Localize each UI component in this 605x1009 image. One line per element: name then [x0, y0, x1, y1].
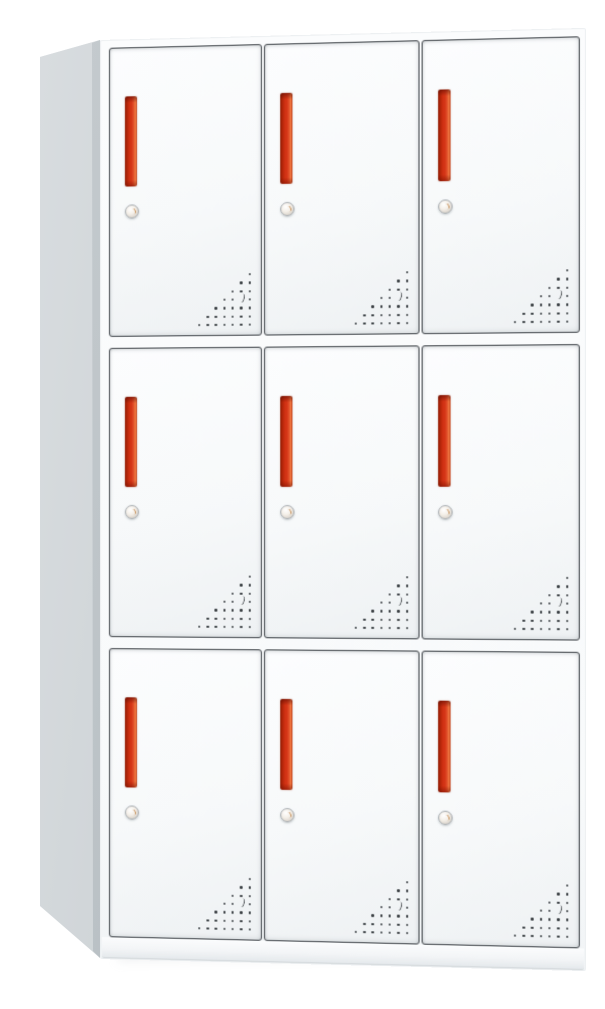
crescent-vent	[554, 597, 562, 607]
vent-hole	[248, 626, 250, 628]
vent-hole	[566, 611, 569, 613]
vent-hole	[248, 307, 250, 309]
keyhole-lock	[438, 505, 452, 519]
vent-hole	[223, 928, 225, 930]
vent-hole	[531, 926, 533, 929]
locker-door	[422, 651, 580, 949]
vent-hole	[389, 314, 391, 316]
vent-hole	[397, 898, 399, 900]
vent-hole	[566, 320, 569, 322]
locker-door	[109, 44, 262, 337]
vent-hole	[372, 914, 374, 916]
vent-hole	[406, 610, 408, 612]
vent-hole	[566, 303, 569, 305]
door-handle	[438, 89, 450, 181]
keyhole-lock	[125, 505, 139, 519]
vent-hole	[380, 314, 382, 316]
vent-hole	[206, 919, 208, 921]
vent-hole	[215, 919, 217, 921]
locker-door	[109, 648, 262, 941]
vent-hole	[215, 911, 217, 913]
vent-hole	[531, 918, 533, 921]
vent-hole	[566, 602, 569, 604]
vent-hole	[215, 626, 217, 628]
vent-holes	[513, 881, 568, 939]
vent-hole	[406, 576, 408, 578]
keyhole-lock	[438, 199, 452, 213]
keyhole-mark	[129, 508, 137, 516]
vent-hole	[240, 928, 242, 930]
keyhole-lock	[438, 811, 452, 826]
vent-hole	[232, 324, 234, 326]
vent-hole	[540, 321, 542, 323]
vent-hole	[548, 611, 551, 613]
vent-hole	[566, 312, 569, 314]
vent-hole	[215, 307, 217, 309]
locker-door	[264, 345, 420, 639]
vent-hole	[548, 935, 551, 938]
vent-hole	[522, 312, 524, 314]
vent-hole	[557, 585, 560, 587]
vent-hole	[566, 619, 569, 621]
vent-hole	[355, 627, 357, 629]
vent-hole	[406, 915, 408, 917]
vent-hole	[372, 322, 374, 324]
vent-hole	[389, 931, 391, 933]
vent-hole	[406, 907, 408, 909]
vent-hole	[240, 886, 242, 888]
crescent-vent	[394, 901, 402, 911]
vent-hole	[232, 601, 234, 603]
vent-hole	[406, 923, 408, 925]
vent-hole	[380, 906, 382, 908]
vent-hole	[248, 315, 250, 317]
vent-holes	[354, 269, 408, 325]
locker-door	[422, 36, 580, 334]
vent-hole	[540, 619, 542, 621]
vent-hole	[198, 324, 200, 326]
vent-holes	[513, 267, 568, 324]
door-handle	[125, 397, 137, 487]
vent-hole	[406, 271, 408, 273]
vent-hole	[522, 935, 524, 938]
vent-hole	[215, 609, 217, 611]
vent-hole	[397, 322, 399, 324]
keyhole-mark	[442, 203, 450, 211]
vent-hole	[389, 288, 391, 290]
vent-hole	[389, 627, 391, 629]
vent-hole	[248, 298, 250, 300]
locker-door	[109, 347, 262, 639]
vent-hole	[240, 315, 242, 317]
vent-hole	[240, 626, 242, 628]
keyhole-lock	[125, 204, 139, 218]
vent-hole	[557, 611, 560, 613]
vent-hole	[223, 299, 225, 301]
vent-hole	[232, 290, 234, 292]
vent-hole	[240, 307, 242, 309]
locker-door	[264, 649, 420, 944]
vent-hole	[248, 323, 250, 325]
vent-hole	[531, 611, 533, 613]
door-handle	[280, 699, 292, 790]
vent-hole	[248, 584, 250, 586]
vent-hole	[363, 618, 365, 620]
vent-hole	[548, 619, 551, 621]
vent-hole	[248, 617, 250, 619]
vent-hole	[566, 628, 569, 630]
vent-hole	[522, 926, 524, 929]
keyhole-lock	[280, 202, 294, 216]
vent-hole	[540, 295, 542, 297]
vent-hole	[380, 627, 382, 629]
vent-hole	[372, 923, 374, 925]
locker-door	[422, 344, 580, 641]
vent-hole	[531, 304, 533, 306]
vent-hole	[397, 288, 399, 290]
vent-hole	[548, 910, 551, 913]
vent-hole	[248, 609, 250, 611]
vent-hole	[240, 911, 242, 913]
vent-hole	[223, 601, 225, 603]
vent-hole	[566, 585, 569, 587]
locker-product-photo	[0, 0, 605, 1009]
vent-hole	[232, 928, 234, 930]
vent-hole	[389, 915, 391, 917]
vent-hole	[389, 322, 391, 324]
vent-hole	[540, 918, 542, 921]
vent-hole	[215, 617, 217, 619]
vent-hole	[240, 617, 242, 619]
vent-hole	[363, 931, 365, 933]
vent-hole	[548, 295, 551, 297]
vent-hole	[389, 601, 391, 603]
vent-hole	[557, 312, 560, 314]
vent-hole	[514, 628, 516, 630]
vent-hole	[540, 926, 542, 929]
vent-hole	[406, 297, 408, 299]
vent-hole	[215, 927, 217, 929]
vent-hole	[566, 927, 569, 930]
vent-hole	[380, 618, 382, 620]
vent-hole	[389, 923, 391, 925]
vent-hole	[248, 911, 250, 913]
vent-hole	[540, 611, 542, 613]
vent-hole	[248, 895, 250, 897]
keyhole-lock	[280, 505, 294, 519]
crescent-vent	[237, 897, 245, 907]
vent-hole	[557, 286, 560, 288]
door-grid	[101, 29, 585, 970]
door-handle	[438, 701, 450, 793]
vent-hole	[397, 627, 399, 629]
vent-hole	[397, 305, 399, 307]
vent-hole	[531, 321, 533, 323]
vent-hole	[380, 923, 382, 925]
vent-hole	[397, 618, 399, 620]
vent-hole	[232, 894, 234, 896]
vent-hole	[406, 305, 408, 307]
vent-hole	[380, 297, 382, 299]
door-handle	[280, 396, 292, 487]
vent-hole	[514, 934, 516, 937]
vent-hole	[240, 920, 242, 922]
vent-hole	[232, 307, 234, 309]
vent-holes	[197, 573, 251, 629]
vent-hole	[531, 312, 533, 314]
vent-hole	[389, 618, 391, 620]
vent-hole	[372, 931, 374, 933]
vent-hole	[406, 602, 408, 604]
vent-hole	[566, 269, 569, 271]
vent-hole	[557, 278, 560, 280]
vent-hole	[548, 918, 551, 921]
vent-hole	[232, 919, 234, 921]
vent-hole	[232, 609, 234, 611]
crescent-vent	[394, 596, 402, 606]
vent-hole	[557, 320, 560, 322]
vent-hole	[548, 304, 551, 306]
vent-hole	[406, 618, 408, 620]
door-handle	[438, 395, 450, 487]
vent-hole	[406, 585, 408, 587]
vent-hole	[397, 932, 399, 934]
vent-hole	[232, 315, 234, 317]
vent-hole	[240, 609, 242, 611]
vent-hole	[566, 919, 569, 922]
vent-hole	[248, 273, 250, 275]
vent-hole	[223, 617, 225, 619]
vent-hole	[397, 889, 399, 891]
keyhole-mark	[285, 811, 293, 819]
vent-hole	[406, 593, 408, 595]
vent-hole	[363, 922, 365, 924]
vent-hole	[206, 315, 208, 317]
vent-hole	[232, 298, 234, 300]
vent-hole	[223, 307, 225, 309]
crescent-vent	[554, 289, 562, 299]
vent-hole	[380, 914, 382, 916]
keyhole-mark	[442, 814, 450, 822]
vent-hole	[548, 602, 551, 604]
vent-hole	[380, 601, 382, 603]
vent-hole	[372, 618, 374, 620]
vent-hole	[397, 923, 399, 925]
vent-hole	[566, 893, 569, 896]
vent-hole	[223, 609, 225, 611]
vent-hole	[397, 593, 399, 595]
vent-hole	[548, 628, 551, 630]
locker-door	[264, 40, 420, 335]
vent-hole	[566, 278, 569, 280]
vent-hole	[206, 324, 208, 326]
vent-hole	[406, 890, 408, 892]
vent-hole	[389, 906, 391, 908]
vent-hole	[389, 610, 391, 612]
vent-hole	[223, 903, 225, 905]
vent-hole	[232, 911, 234, 913]
vent-hole	[557, 303, 560, 305]
vent-hole	[406, 288, 408, 290]
vent-hole	[566, 577, 569, 579]
vent-hole	[566, 295, 569, 297]
vent-hole	[363, 314, 365, 316]
keyhole-lock	[125, 805, 139, 819]
keyhole-mark	[129, 208, 137, 216]
vent-hole	[248, 920, 250, 922]
vent-hole	[557, 901, 560, 904]
vent-hole	[557, 628, 560, 630]
vent-hole	[531, 628, 533, 630]
vent-hole	[557, 619, 560, 621]
vent-hole	[248, 592, 250, 594]
vent-hole	[198, 625, 200, 627]
vent-hole	[355, 931, 357, 933]
keyhole-mark	[285, 205, 293, 213]
vent-holes	[197, 875, 251, 932]
vent-hole	[531, 619, 533, 621]
vent-hole	[406, 322, 408, 324]
vent-holes	[513, 575, 568, 632]
vent-hole	[372, 314, 374, 316]
crescent-vent	[394, 291, 402, 301]
vent-hole	[540, 304, 542, 306]
vent-hole	[223, 324, 225, 326]
vent-hole	[248, 601, 250, 603]
vent-hole	[248, 576, 250, 578]
vent-hole	[232, 617, 234, 619]
vent-hole	[248, 878, 250, 880]
vent-hole	[240, 323, 242, 325]
vent-hole	[380, 322, 382, 324]
keyhole-mark	[442, 508, 450, 516]
vent-hole	[372, 627, 374, 629]
vent-hole	[406, 280, 408, 282]
vent-hole	[240, 592, 242, 594]
vent-hole	[406, 627, 408, 629]
vent-hole	[380, 305, 382, 307]
vent-hole	[380, 931, 382, 933]
vent-hole	[540, 909, 542, 912]
vent-hole	[566, 901, 569, 904]
vent-hole	[240, 282, 242, 284]
vent-hole	[557, 927, 560, 930]
vent-hole	[198, 927, 200, 929]
vent-hole	[540, 935, 542, 938]
vent-holes	[354, 878, 408, 935]
vent-hole	[248, 903, 250, 905]
vent-hole	[240, 895, 242, 897]
vent-hole	[406, 881, 408, 883]
vent-hole	[566, 936, 569, 939]
vent-hole	[206, 927, 208, 929]
vent-hole	[223, 911, 225, 913]
vent-hole	[240, 584, 242, 586]
vent-hole	[223, 626, 225, 628]
vent-hole	[548, 287, 551, 289]
vent-hole	[397, 610, 399, 612]
vent-hole	[566, 286, 569, 288]
keyhole-mark	[129, 809, 137, 817]
vent-hole	[240, 290, 242, 292]
vent-hole	[531, 935, 533, 938]
vent-hole	[406, 932, 408, 934]
vent-hole	[406, 898, 408, 900]
vent-hole	[566, 884, 569, 887]
vent-hole	[248, 886, 250, 888]
keyhole-mark	[285, 508, 293, 516]
vent-hole	[223, 919, 225, 921]
crescent-vent	[237, 595, 245, 605]
vent-hole	[548, 312, 551, 314]
vent-hole	[223, 315, 225, 317]
vent-holes	[197, 271, 251, 327]
vent-hole	[397, 280, 399, 282]
vent-hole	[397, 314, 399, 316]
vent-hole	[389, 898, 391, 900]
door-handle	[125, 697, 137, 787]
vent-hole	[363, 627, 365, 629]
vent-hole	[232, 626, 234, 628]
vent-hole	[372, 305, 374, 307]
vent-hole	[380, 610, 382, 612]
vent-hole	[232, 592, 234, 594]
vent-hole	[548, 901, 551, 904]
vent-hole	[372, 610, 374, 612]
vent-hole	[215, 315, 217, 317]
vent-hole	[522, 628, 524, 630]
vent-hole	[206, 626, 208, 628]
vent-hole	[389, 305, 391, 307]
vent-hole	[566, 594, 569, 596]
vent-hole	[566, 910, 569, 913]
vent-hole	[540, 312, 542, 314]
vent-holes	[354, 574, 408, 630]
vent-hole	[548, 927, 551, 930]
vent-hole	[355, 322, 357, 324]
vent-hole	[540, 602, 542, 604]
vent-hole	[522, 619, 524, 621]
vent-hole	[363, 322, 365, 324]
vent-hole	[514, 321, 516, 323]
vent-hole	[397, 915, 399, 917]
keyhole-lock	[280, 808, 294, 822]
crescent-vent	[237, 293, 245, 303]
vent-hole	[522, 321, 524, 323]
vent-hole	[389, 593, 391, 595]
vent-hole	[248, 282, 250, 284]
vent-hole	[389, 297, 391, 299]
door-handle	[125, 96, 137, 186]
vent-hole	[557, 594, 560, 596]
vent-hole	[215, 324, 217, 326]
vent-hole	[557, 893, 560, 896]
vent-hole	[540, 628, 542, 630]
vent-hole	[557, 935, 560, 938]
vent-hole	[397, 585, 399, 587]
vent-hole	[548, 321, 551, 323]
cabinet-front	[100, 28, 586, 971]
vent-hole	[406, 313, 408, 315]
crescent-vent	[554, 904, 562, 915]
vent-hole	[548, 594, 551, 596]
vent-hole	[248, 290, 250, 292]
vent-hole	[206, 617, 208, 619]
vent-hole	[557, 918, 560, 921]
vent-hole	[248, 928, 250, 930]
vent-hole	[232, 903, 234, 905]
door-handle	[280, 93, 292, 184]
